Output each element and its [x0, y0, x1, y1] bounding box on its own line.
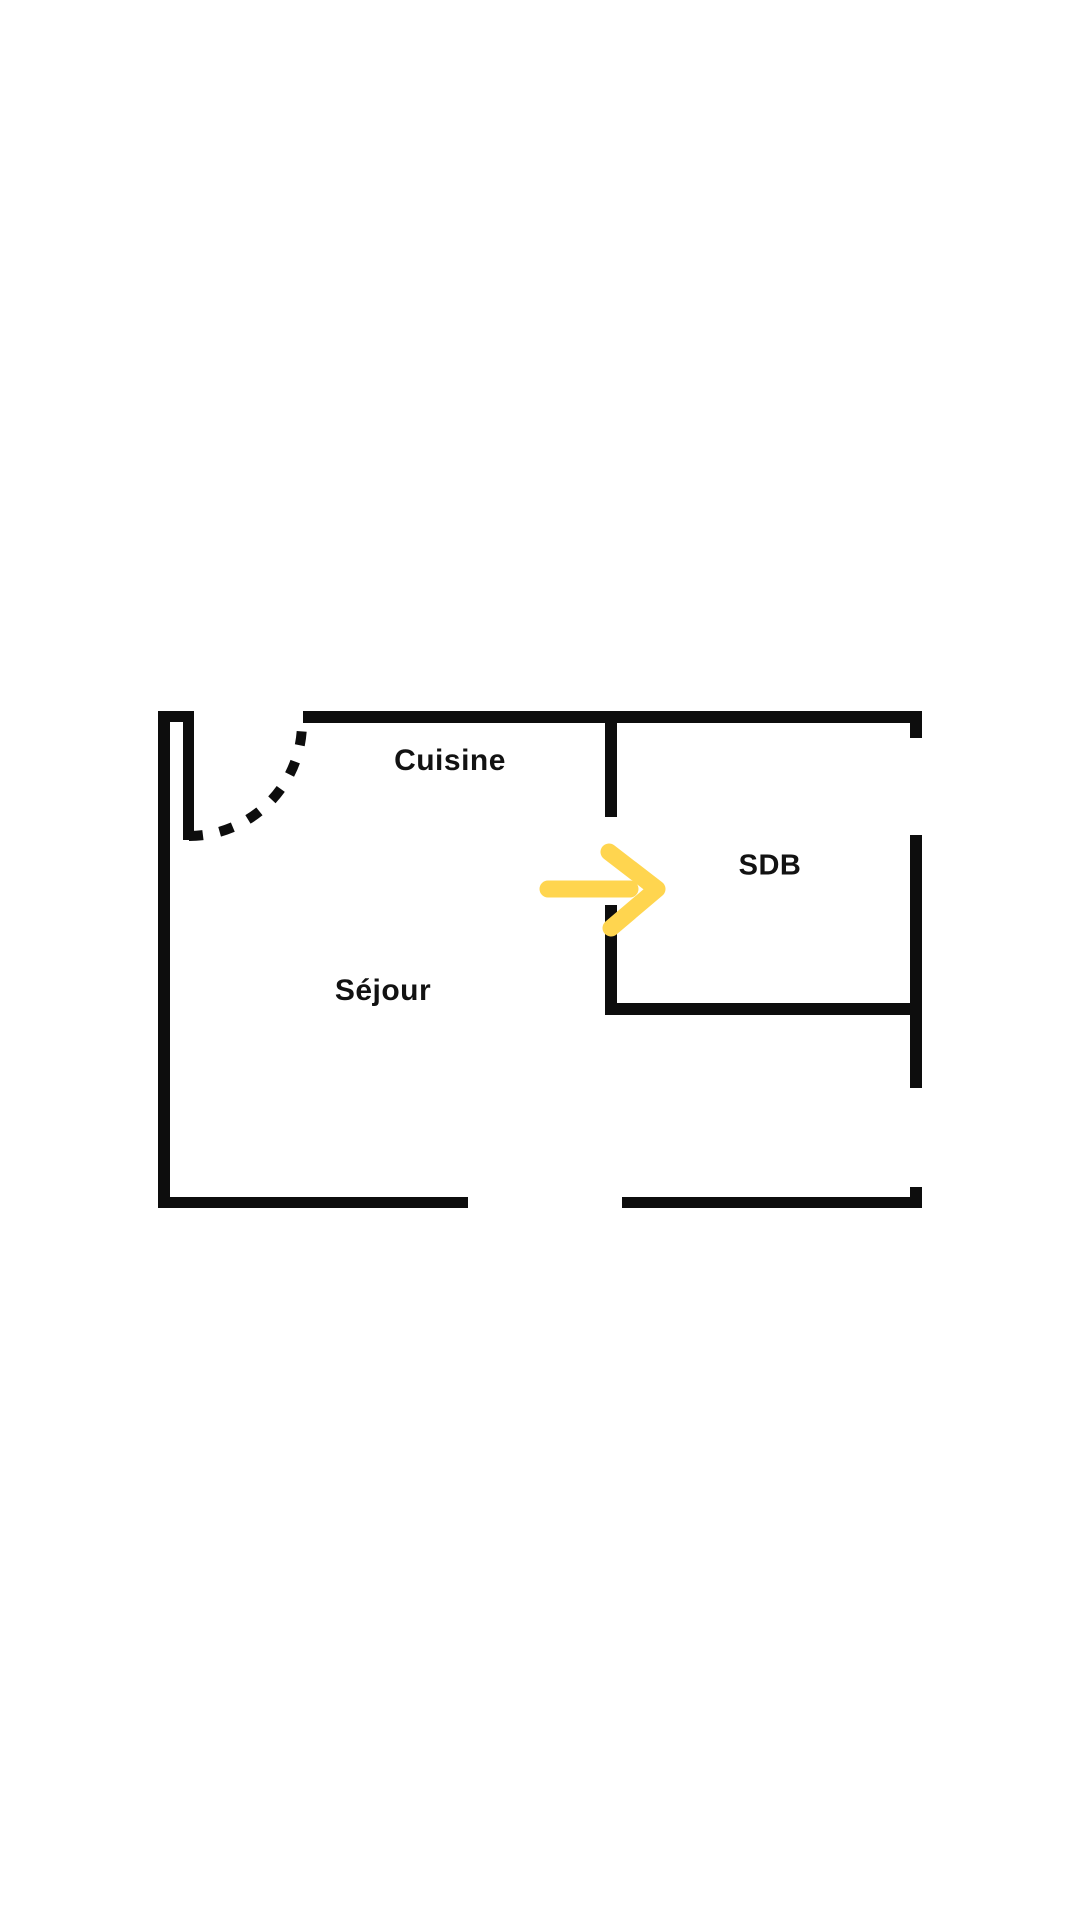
left-wall [158, 711, 170, 1208]
kitchen-divider-wall-upper [605, 711, 617, 817]
door-jamb [183, 711, 194, 840]
room-label-sdb: SDB [739, 850, 802, 883]
room-label-cuisine: Cuisine [394, 744, 506, 778]
bottom-wall-right [622, 1197, 922, 1208]
sdb-bottom-wall [605, 1003, 922, 1015]
right-wall-top-stub [910, 711, 922, 738]
floor-plan-page: Cuisine Séjour SDB [0, 0, 1080, 1920]
right-wall [910, 835, 922, 1088]
bottom-wall-left [158, 1197, 468, 1208]
walls-group [158, 711, 922, 1208]
arrow-right-icon [548, 852, 657, 928]
floor-plan-drawing [0, 0, 1080, 1920]
door-swing-arc-icon [189, 723, 302, 836]
room-label-sejour: Séjour [335, 974, 431, 1008]
